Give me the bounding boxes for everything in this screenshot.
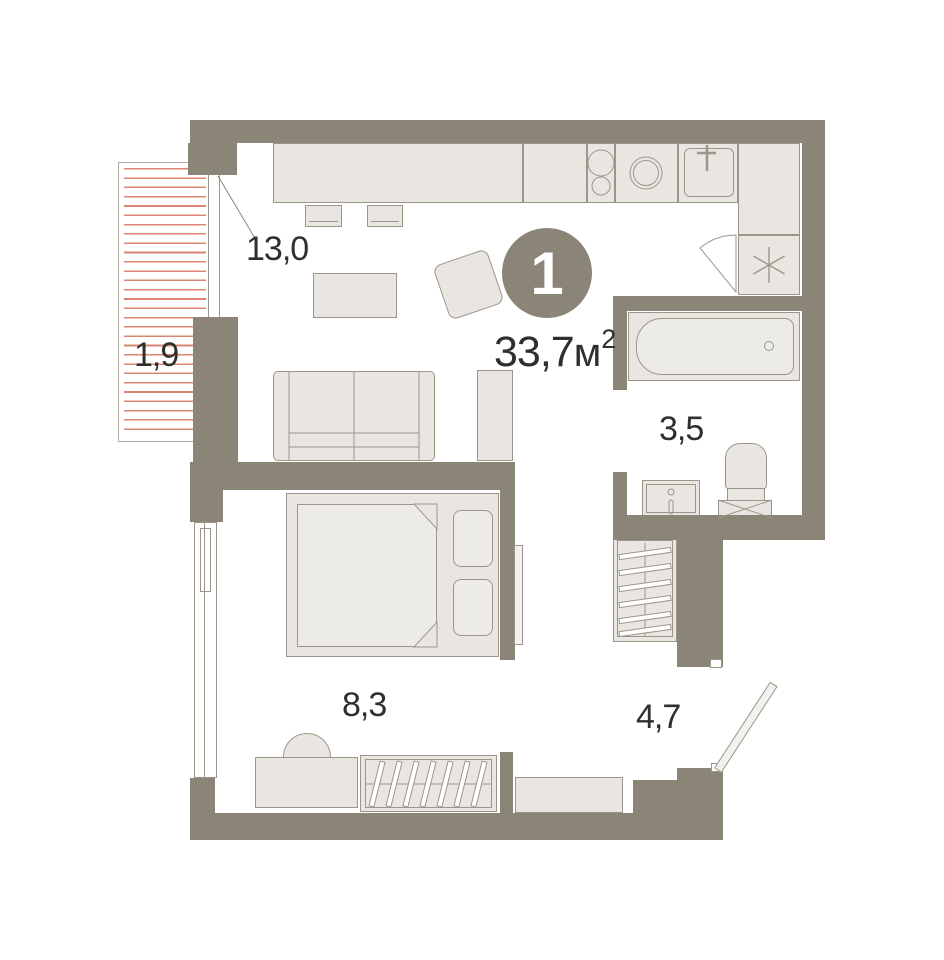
- pouf-table: [432, 248, 504, 320]
- bathroom-sink-inner: [646, 484, 696, 513]
- wall-bottom-right: [677, 768, 723, 840]
- hallway-area-label: 4,7: [636, 698, 680, 737]
- wall-bathroom-left-lower: [613, 472, 627, 515]
- bar-stool: [305, 205, 342, 227]
- bed-blanket: [297, 504, 437, 647]
- wall-top: [190, 120, 825, 143]
- chair: [283, 733, 331, 758]
- living-kitchen-area-label: 13,0: [246, 230, 308, 269]
- sofa: [273, 371, 435, 461]
- wall-bathroom-top: [613, 296, 825, 311]
- window-vent: [200, 528, 211, 592]
- bathtub-inner: [636, 318, 794, 375]
- fridge: [738, 235, 800, 295]
- balcony-door-window: [208, 175, 220, 317]
- wall-bedroom-right-stub: [500, 752, 513, 813]
- wall-left-pier: [193, 317, 238, 463]
- wall-living-bedroom: [190, 462, 515, 490]
- entry-door-frame-notch: [710, 659, 722, 668]
- room-count-badge: 1: [502, 228, 592, 318]
- desk: [255, 757, 358, 808]
- hallway-bench: [515, 777, 623, 813]
- entry-door-leaf: [714, 682, 778, 773]
- pillow: [453, 579, 493, 636]
- bathroom-area-label: 3,5: [659, 410, 703, 449]
- balcony-area-label: 1,9: [134, 336, 178, 375]
- wall-bottom-left-block: [190, 778, 215, 813]
- wall-right: [802, 143, 825, 540]
- wardrobe-inner: [365, 759, 492, 808]
- bedroom-window: [194, 522, 217, 778]
- kitchen-counter-sink-section: [615, 143, 678, 203]
- kitchen-stove: [587, 143, 615, 203]
- wall-left-corner: [190, 490, 223, 522]
- coffee-table: [313, 273, 397, 318]
- wall-entry-column: [677, 533, 723, 667]
- wall-bottom-step: [633, 780, 677, 813]
- toilet: [725, 443, 767, 490]
- bar-stool: [367, 205, 403, 227]
- hallway-closet-inner: [617, 540, 673, 637]
- bedroom-area-label: 8,3: [342, 686, 386, 725]
- total-area-label: 33,7м2: [494, 324, 615, 377]
- pillow: [453, 510, 493, 567]
- room-count: 1: [530, 239, 563, 308]
- wall-bathroom-bottom: [613, 515, 825, 540]
- tv-stand: [477, 370, 513, 461]
- wall-bedroom-right: [500, 490, 515, 660]
- kitchen-counter-table: [273, 143, 523, 203]
- kitchen-counter-cabinet: [523, 143, 587, 203]
- kitchen-sink-basin: [684, 148, 734, 197]
- wall-bottom: [190, 813, 677, 840]
- corner-cabinet-swing: [700, 235, 736, 292]
- kitchen-corner-counter: [738, 143, 800, 235]
- floor-plan: 1 33,7м2 13,0 1,9 3,5 8,3 4,7: [0, 0, 944, 960]
- bedroom-door-leaf: [514, 545, 523, 645]
- wall-top-left-corner: [188, 143, 237, 175]
